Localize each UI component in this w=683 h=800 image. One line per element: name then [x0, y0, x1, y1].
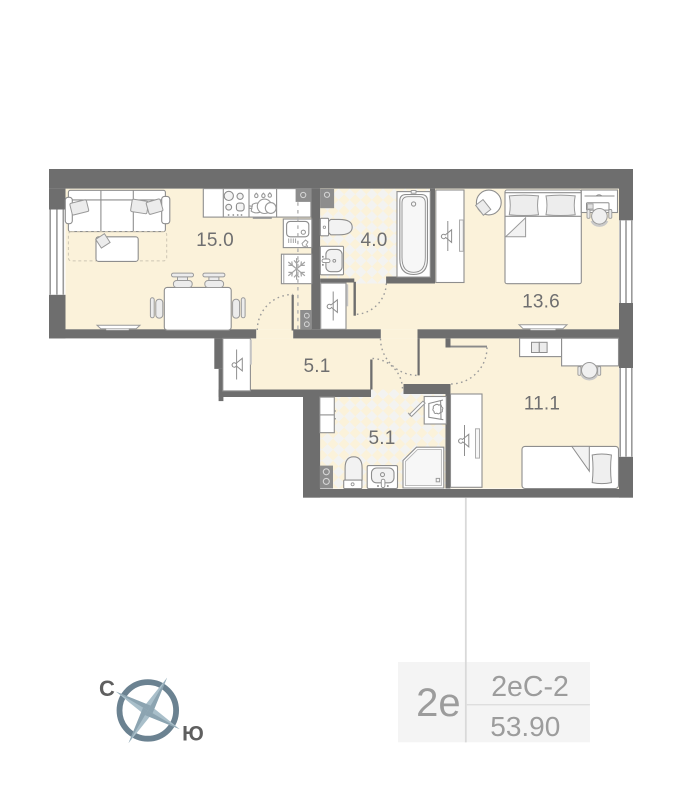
svg-text:4.0: 4.0	[360, 230, 387, 251]
svg-text:53.90: 53.90	[490, 711, 560, 742]
svg-text:13.6: 13.6	[522, 292, 560, 313]
svg-text:11.1: 11.1	[524, 394, 560, 415]
svg-text:15.0: 15.0	[196, 230, 234, 251]
svg-text:2еС-2: 2еС-2	[491, 671, 569, 703]
svg-text:2е: 2е	[416, 681, 461, 725]
svg-text:Ю: Ю	[182, 723, 204, 746]
svg-text:С: С	[99, 676, 115, 701]
svg-text:5.1: 5.1	[303, 356, 330, 377]
svg-text:5.1: 5.1	[368, 428, 395, 449]
